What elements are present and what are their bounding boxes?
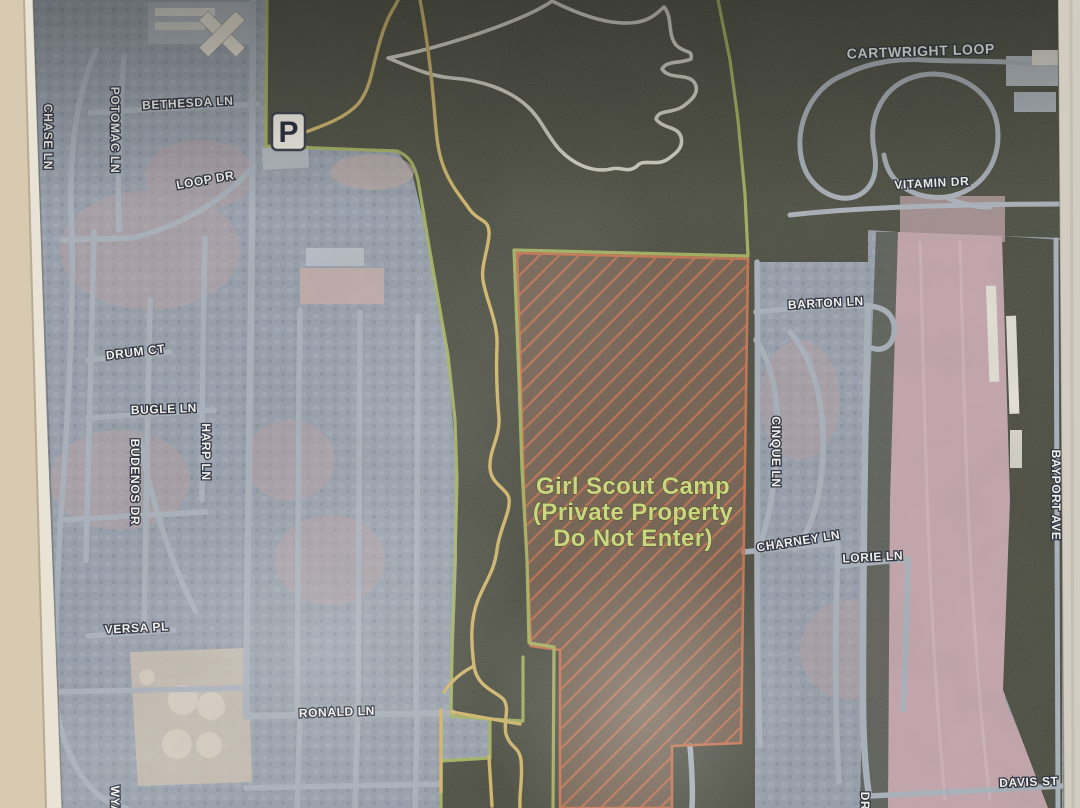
photo-lighting — [0, 0, 1064, 808]
frame-right-groove — [1071, 0, 1073, 808]
map-canvas: CHASE LNPOTOMAC LNBETHESDA LNLOOP DRDRUM… — [0, 0, 1080, 808]
warm-cast — [20, 0, 1064, 808]
trail-map-photo: CHASE LNPOTOMAC LNBETHESDA LNLOOP DRDRUM… — [0, 0, 1080, 808]
